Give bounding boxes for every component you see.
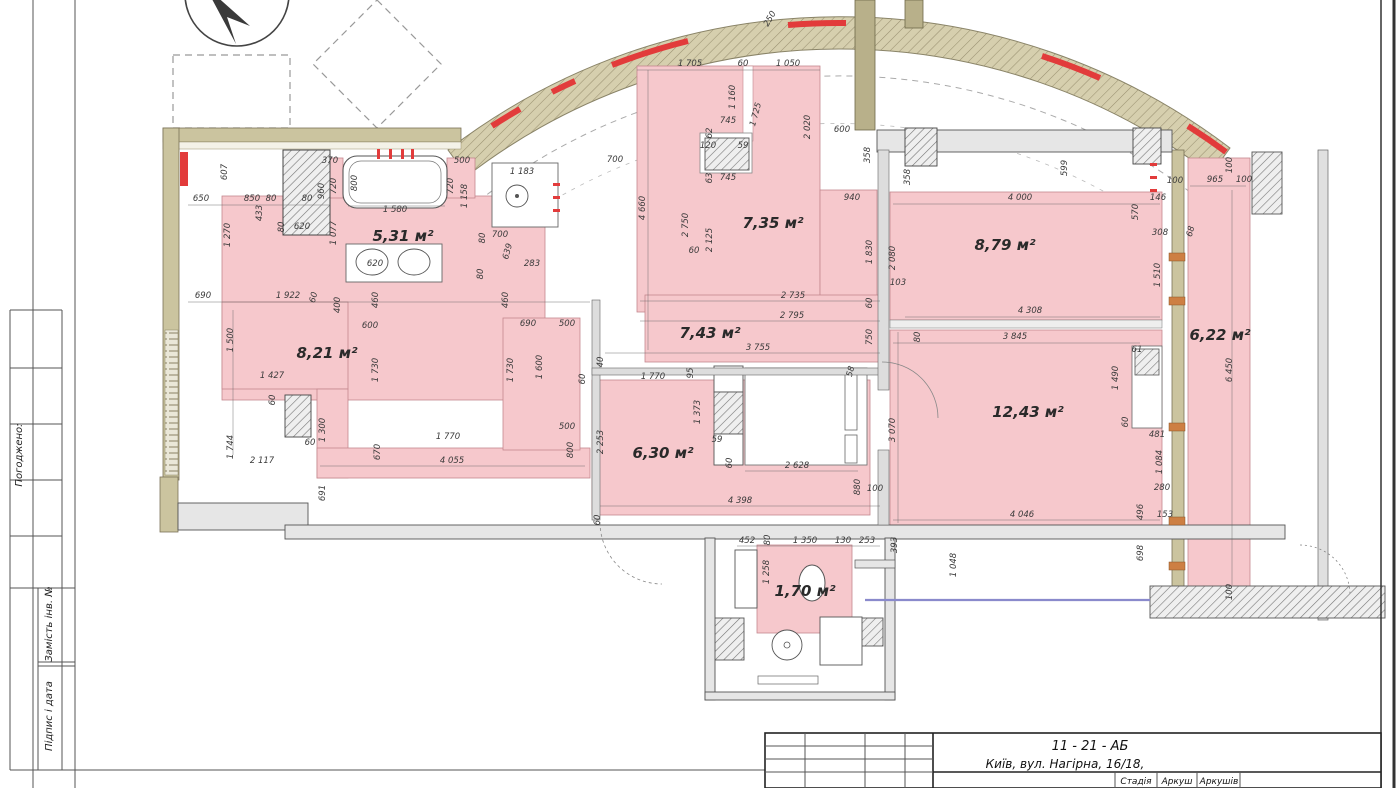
dimension-text: 960 [317, 183, 327, 199]
floor-plan-drawing: 3705008007209607201 1581 183650850808043… [0, 0, 1400, 788]
dimension-text: 62 [705, 128, 715, 139]
dimension-text: 59 [738, 141, 749, 151]
document-address: Київ, вул. Нагірна, 16/18, [986, 757, 1145, 771]
dimension-text: 2 735 [781, 291, 805, 301]
dimension-text: 698 [1136, 544, 1146, 561]
dimension-text: 120 [700, 141, 716, 151]
dimension-text: 4 660 [638, 196, 648, 220]
dimension-text: 80 [763, 535, 773, 546]
dimension-text: 1 048 [949, 552, 959, 577]
dimension-text: 850 [244, 194, 260, 204]
dimension-text: 1 300 [318, 418, 328, 442]
dimension-text: 620 [367, 259, 383, 269]
dimension-text: 650 [193, 194, 209, 204]
dimension-text: 750 [865, 329, 875, 345]
dimension-text: 100 [1167, 176, 1183, 186]
dimension-text: 63 [705, 173, 715, 184]
dimension-text: 965 [1207, 175, 1223, 185]
dimension-text: 80 [476, 269, 486, 280]
dimension-text: 60 [1121, 417, 1131, 428]
dimension-text: 720 [329, 178, 339, 194]
room-area-label: 7,35 м² [742, 214, 803, 232]
dimension-text: 4 398 [728, 496, 753, 506]
dimension-text: 153 [1157, 510, 1173, 520]
dimension-text: 1 600 [535, 355, 545, 379]
dimension-text: 745 [720, 116, 736, 126]
dimension-text: 2 117 [250, 456, 275, 466]
dimension-text: 1 258 [762, 559, 772, 584]
dimension-text: 2 795 [780, 311, 804, 321]
dimension-text: 745 [720, 173, 736, 183]
dimension-text: 1 160 [728, 85, 738, 109]
dimension-text: 599 [1060, 160, 1070, 176]
dimension-text: 4 000 [1008, 193, 1032, 203]
dimension-text: 40 [596, 357, 606, 368]
dimension-text: 2 125 [705, 228, 715, 252]
dimension-text: 496 [1136, 503, 1146, 520]
dimension-text: 100 [1225, 157, 1235, 173]
dimension-text: 1 050 [776, 59, 800, 69]
dimension-text: 690 [195, 291, 211, 301]
sheets-label: Аркушів [1199, 777, 1239, 787]
title-block: 11 - 21 - АБ Київ, вул. Нагірна, 16/18, … [765, 733, 1381, 788]
dimension-text: 100 [1236, 175, 1252, 185]
room-balcony [1188, 158, 1250, 588]
dimension-text: 80 [277, 222, 287, 233]
dimension-text: 500 [559, 319, 575, 329]
dimension-text: 60 [268, 395, 278, 406]
dimension-text: 80 [913, 332, 923, 343]
agreed-label: Погоджено: [14, 423, 25, 486]
dimension-text: 1 183 [510, 167, 534, 177]
dimension-text: 2 628 [785, 461, 810, 471]
dimension-text: 620 [294, 222, 310, 232]
dimension-text: 2 253 [596, 430, 606, 454]
dimension-text: 670 [373, 444, 383, 460]
dimension-text: 880 [853, 479, 863, 495]
dimension-text: 2 020 [803, 115, 813, 139]
room-879 [890, 192, 1162, 320]
dimension-text: 433 [255, 205, 265, 221]
room-area-label: 12,43 м² [992, 403, 1064, 421]
dimension-text: 607 [220, 163, 230, 180]
dimension-text: 3 845 [1003, 332, 1027, 342]
dimension-text: 60 [578, 374, 588, 385]
room-area-label: 7,43 м² [679, 324, 740, 342]
dimension-text: 1 770 [436, 432, 460, 442]
radiator-tag [180, 152, 188, 186]
dimension-text: 500 [454, 156, 470, 166]
dimension-text: 61 [1132, 345, 1143, 355]
dimension-text: 308 [1152, 228, 1169, 238]
dimension-text: 60 [305, 438, 316, 448]
dimension-text: 146 [1150, 193, 1167, 203]
dimension-text: 452 [739, 536, 755, 546]
room-area-label: 1,70 м² [774, 582, 835, 600]
dimension-text: 80 [478, 233, 488, 244]
dimension-text: 370 [322, 156, 338, 166]
dimension-text: 940 [844, 193, 860, 203]
dimension-text: 400 [333, 297, 343, 313]
dimension-text: 60 [738, 59, 749, 69]
dimension-text: 80 [302, 194, 313, 204]
dimension-text: 103 [890, 278, 906, 288]
dimension-text: 358 [903, 168, 913, 185]
replace-inv-label: Замість інв. № [43, 586, 55, 661]
dimension-text: 1 730 [506, 358, 516, 382]
dimension-text: 6 450 [1225, 358, 1235, 382]
dimension-text: 4 046 [1010, 510, 1035, 520]
dimension-text: 358 [863, 146, 873, 163]
dimension-text: 3 070 [888, 418, 898, 442]
dimension-text: 1 705 [678, 59, 702, 69]
dimension-text: 1 744 [226, 435, 236, 459]
dimension-text: 1 830 [865, 240, 875, 264]
dimension-text: 1 490 [1111, 366, 1121, 390]
dimension-text: 570 [1131, 204, 1141, 220]
dimension-text: 2 750 [681, 213, 691, 237]
washing-machine [820, 617, 862, 665]
dimension-text: 1 373 [693, 400, 703, 424]
dimension-text: 60 [689, 246, 700, 256]
dimension-text: 1 580 [383, 205, 407, 215]
dimension-text: 1 730 [371, 358, 381, 382]
dimension-text: 100 [867, 484, 883, 494]
dimension-text: 600 [834, 125, 850, 135]
dimension-text: 800 [566, 442, 576, 458]
dimension-text: 460 [371, 292, 381, 308]
dimension-text: 1 350 [793, 536, 817, 546]
dimension-text: 100 [1225, 584, 1235, 600]
dimension-text: 691 [318, 485, 328, 501]
dimension-text: 393 [890, 537, 900, 553]
dimension-text: 700 [607, 155, 623, 165]
dimension-text: 600 [362, 321, 378, 331]
room-area-label: 6,22 м² [1189, 326, 1250, 344]
dimension-text: 700 [492, 230, 508, 240]
dimension-text: 1 084 [1155, 450, 1165, 474]
sheet-label: Аркуш [1161, 777, 1193, 787]
dimension-text: 2 080 [888, 246, 898, 270]
signature-date-label: Підпис і дата [43, 681, 55, 751]
dimension-text: 1 077 [329, 220, 339, 245]
dimension-text: 1 770 [641, 372, 665, 382]
dimension-text: 253 [859, 536, 875, 546]
dimension-text: 80 [266, 194, 277, 204]
wc-sink-counter [735, 550, 757, 608]
dimension-text: 1 427 [260, 371, 285, 381]
dimension-text: 500 [559, 422, 575, 432]
dimension-text: 1 510 [1153, 263, 1163, 287]
dimension-text: 690 [520, 319, 536, 329]
dimension-text: 1 158 [460, 183, 470, 208]
room-area-label: 6,30 м² [632, 444, 693, 462]
dimension-text: 1 500 [226, 328, 236, 352]
dimension-text: 1 270 [223, 223, 233, 247]
dimension-text: 60 [865, 298, 875, 309]
stage-label: Стадія [1120, 777, 1152, 787]
dimension-text: 3 755 [746, 343, 770, 353]
document-code: 11 - 21 - АБ [1052, 739, 1129, 754]
dimension-text: 1 922 [276, 291, 300, 301]
dimension-text: 481 [1149, 430, 1165, 440]
dimension-text: 130 [835, 536, 851, 546]
room-area-label: 8,21 м² [296, 344, 357, 362]
dimension-text: 720 [446, 178, 456, 194]
dimension-text: 60 [593, 515, 603, 526]
dimension-text: 800 [350, 175, 360, 191]
room-area-label: 5,31 м² [372, 227, 433, 245]
dimension-text: 283 [524, 259, 540, 269]
room-area-label: 8,79 м² [974, 236, 1035, 254]
dimension-text: 4 308 [1018, 306, 1043, 316]
dimension-text: 95 [686, 368, 696, 379]
dimension-text: 59 [712, 435, 723, 445]
dimension-text: 4 055 [440, 456, 464, 466]
dimension-text: 460 [501, 292, 511, 308]
dimension-text: 280 [1154, 483, 1170, 493]
dimension-text: 60 [725, 458, 735, 469]
